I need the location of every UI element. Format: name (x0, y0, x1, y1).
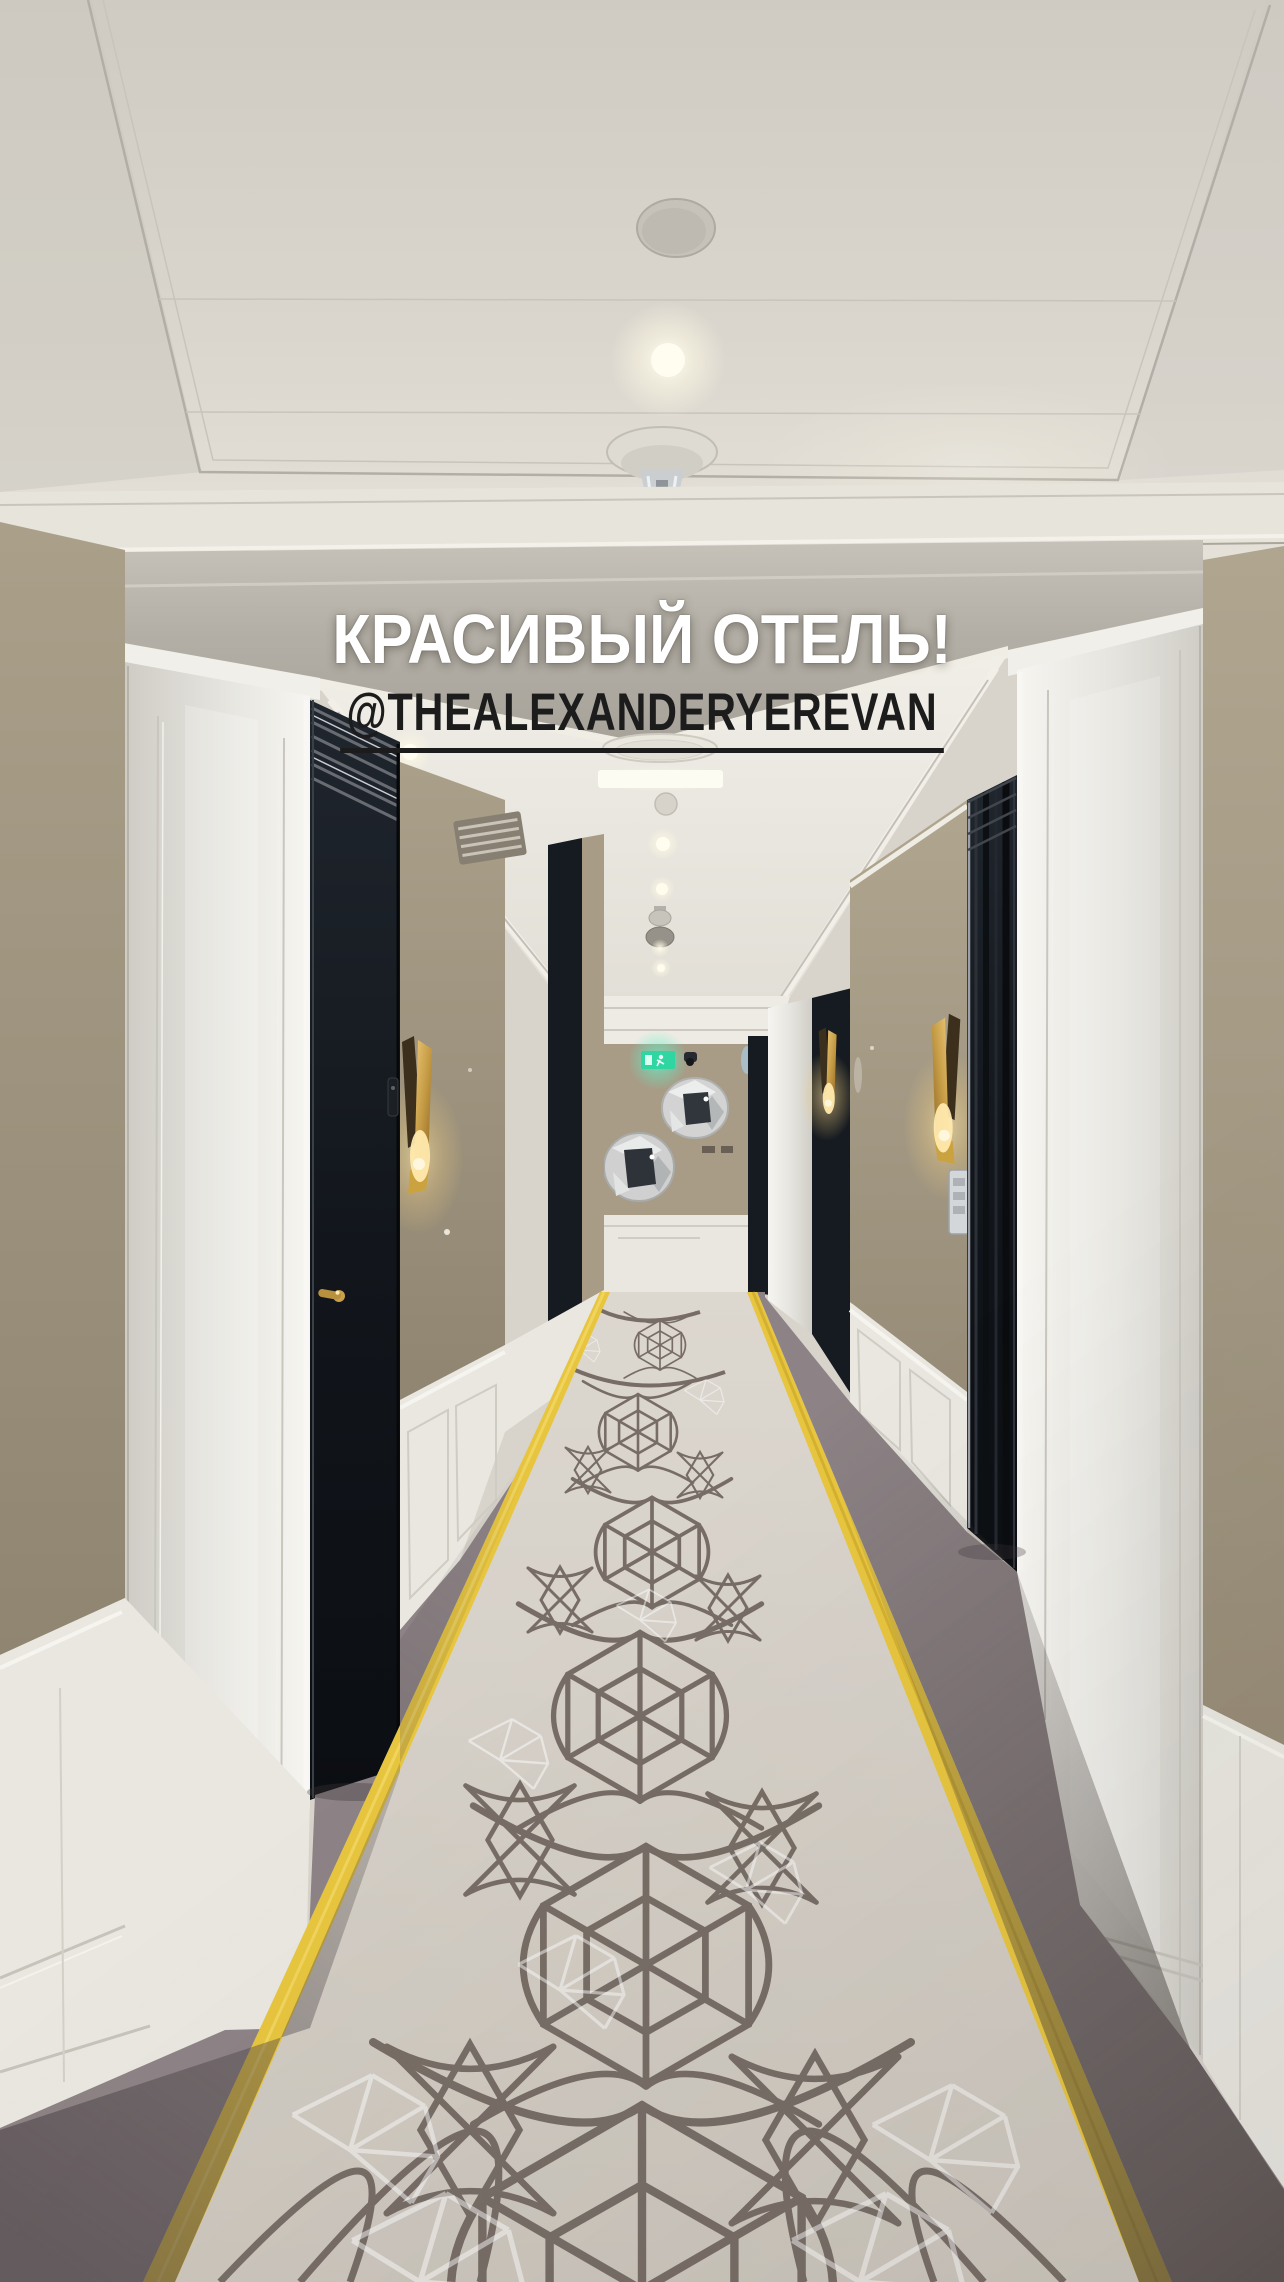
hotel-hallway-scene (0, 0, 1284, 2282)
mention-link[interactable]: @THEALEXANDERYEREVAN (340, 686, 944, 753)
instagram-story-photo: КРАСИВЫЙ ОТЕЛЬ! @THEALEXANDERYEREVAN (0, 0, 1284, 2282)
mention-row: @THEALEXANDERYEREVAN (0, 686, 1284, 753)
photo-vignette (0, 0, 1284, 2282)
story-headline-text: КРАСИВЫЙ ОТЕЛЬ! (64, 604, 1220, 674)
